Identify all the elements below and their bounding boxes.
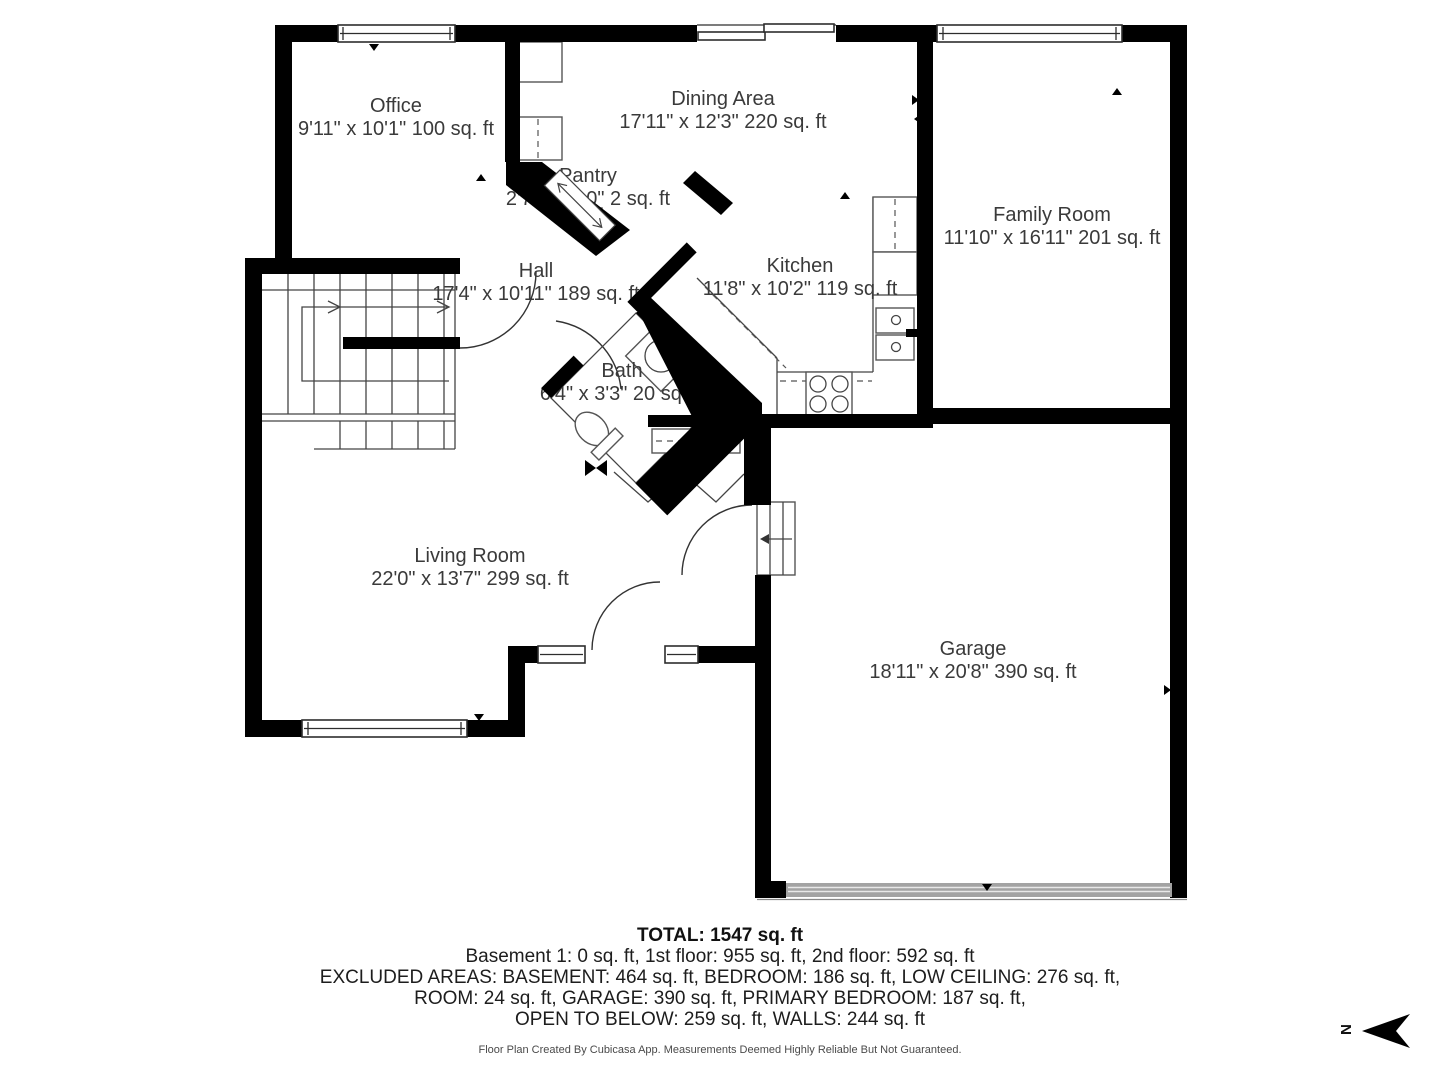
walls [245,25,1187,898]
summary-excluded-3: OPEN TO BELOW: 259 sq. ft, WALLS: 244 sq… [0,1009,1440,1030]
walls-layer [0,0,1440,1080]
sliding-door [697,24,836,42]
floor-plan-page: Office 9'11" x 10'1" 100 sq. ft Dining A… [0,0,1440,1080]
compass-north-label: N [1337,1024,1354,1035]
window-entry-left [538,646,585,663]
disclaimer-text: Floor Plan Created By Cubicasa App. Meas… [0,1044,1440,1056]
area-summary: TOTAL: 1547 sq. ft Basement 1: 0 sq. ft,… [0,925,1440,1030]
total-area: TOTAL: 1547 sq. ft [0,925,1440,946]
summary-excluded-2: ROOM: 24 sq. ft, GARAGE: 390 sq. ft, PRI… [0,988,1440,1009]
window-family-room [937,25,1122,42]
summary-floors: Basement 1: 0 sq. ft, 1st floor: 955 sq.… [0,946,1440,967]
garage-door [757,883,1187,900]
summary-excluded-1: EXCLUDED AREAS: BASEMENT: 464 sq. ft, BE… [0,967,1440,988]
window-living-room [302,720,467,737]
window-entry-right [665,646,698,663]
window-office [338,25,455,42]
